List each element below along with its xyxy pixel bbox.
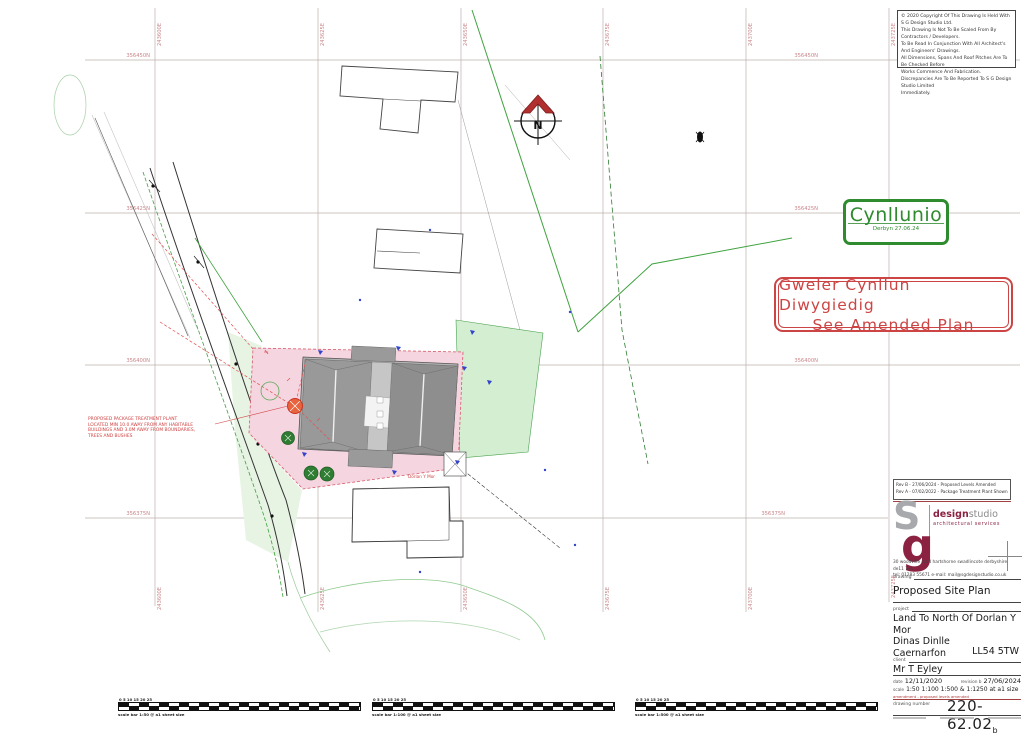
svg-text:356375N: 356375N (761, 511, 785, 517)
scale-value: 1:50 1:100 1:500 & 1:1250 at a1 size (906, 686, 1018, 693)
micro-text-row (893, 717, 1021, 719)
rule (893, 602, 1021, 603)
scale-row: scale 1:50 1:100 1:500 & 1:1250 at a1 si… (893, 686, 1021, 693)
svg-text:243650E: 243650E (463, 23, 469, 46)
scale-bar-label: scale bar 1:500 @ a1 sheet size (635, 712, 878, 717)
logo-design: design (933, 509, 969, 520)
rule (909, 658, 1021, 663)
north-arrow: N (505, 85, 570, 160)
copyright-line: Discrepancies Are To Be Reported To S G … (901, 76, 1012, 90)
rooflight-markers (377, 397, 383, 429)
svg-text:243700E: 243700E (748, 587, 754, 610)
stamp-strike-line (848, 223, 944, 224)
svg-text:243675E: 243675E (605, 587, 611, 610)
drawing-label-row: drawing (893, 575, 1021, 580)
svg-text:356450N: 356450N (126, 53, 150, 59)
stamp-line-welsh: Gweler Cynllun Diwygiedig (779, 275, 1008, 315)
logo-wordmark: designstudio (933, 509, 998, 520)
contour-lines (92, 112, 198, 338)
svg-text:356425N: 356425N (794, 206, 818, 212)
client-label-row: client (893, 658, 1021, 663)
revision-label: revision b (961, 680, 982, 685)
date-value: 12/11/2020 (905, 677, 942, 685)
scale-bar-3: 0 5 10 15 20 25 scale bar 1:500 @ a1 she… (635, 697, 878, 717)
site-plan-canvas: 356450N 356425N 356400N 356375N 356450N … (0, 0, 1024, 723)
drawing-number-label: drawing number (893, 702, 930, 707)
scale-bar-1: 0 5 10 15 20 25 scale bar 1:50 @ a1 shee… (118, 697, 361, 717)
client-label: client (893, 658, 906, 663)
project-label: project (893, 607, 909, 612)
copyright-line: All Dimensions, Spans And Roof Pitches A… (901, 55, 1012, 69)
postcode: LL54 5TW (893, 646, 1019, 657)
annotation-line: TREES AND BUSHES (88, 434, 195, 440)
copyright-line: © 2020 Copyright Of This Drawing Is Held… (901, 13, 1012, 27)
scale-bar-strip (118, 707, 361, 711)
rule (912, 607, 1021, 612)
svg-text:356375N: 356375N (126, 511, 150, 517)
drawing-title: Proposed Site Plan (893, 585, 991, 597)
drawing-number: 220-62.02b (947, 697, 1021, 735)
proposed-building (298, 346, 458, 468)
svg-text:356400N: 356400N (794, 358, 818, 364)
amended-plan-stamp-inner: Gweler Cynllun Diwygiedig See Amended Pl… (778, 281, 1009, 328)
copyright-line: This Drawing Is Not To Be Scaled From By… (901, 27, 1012, 41)
address-line: 30 woodville road hartshorne swadlincote… (893, 560, 1019, 573)
svg-text:243700E: 243700E (748, 23, 754, 46)
svg-text:356400N: 356400N (126, 358, 150, 364)
svg-text:243675E: 243675E (605, 23, 611, 46)
easting-labels-top: 243600E 243625E 243650E 243675E 243700E … (157, 23, 897, 46)
date-label: date (893, 680, 903, 685)
drawing-label: drawing (893, 575, 911, 580)
drawing-number-suffix: b (992, 726, 998, 735)
svg-text:243600E: 243600E (157, 587, 163, 610)
easting-labels-bottom: 243600E 243625E 243650E 243675E 243700E … (157, 575, 897, 610)
annotation-line: BUILDINGS AND 3.0M AWAY FROM BOUNDARIES, (88, 428, 195, 434)
amended-plan-stamp: Gweler Cynllun Diwygiedig See Amended Pl… (774, 277, 1013, 332)
title-block: Rev B - 27/06/2024 - Proposed Levels Ame… (891, 476, 1021, 723)
divider-line (893, 715, 1021, 716)
client-name: Mr T Eyley (893, 664, 943, 675)
stamp-line-english: See Amended Plan (812, 315, 974, 335)
rule (914, 575, 1021, 580)
date-row: date 12/11/2020 revision b 27/06/2024 (893, 677, 1021, 685)
scale-label: scale (893, 688, 904, 693)
project-label-row: project (893, 607, 1021, 612)
svg-text:243650E: 243650E (463, 587, 469, 610)
svg-text:243600E: 243600E (157, 23, 163, 46)
copyright-line: Works Commence And Fabrication. (901, 69, 1012, 76)
svg-text:356450N: 356450N (794, 53, 818, 59)
northing-labels-left: 356450N 356425N 356400N 356375N (126, 53, 150, 517)
rule (893, 675, 1021, 676)
logo-studio: studio (969, 509, 998, 520)
benchmark-symbol (696, 132, 704, 143)
copyright-line: To Be Read In Conjunction With All Archi… (901, 41, 1012, 55)
copyright-line: Immediately. (901, 90, 1012, 97)
neighbour-buildings (340, 66, 463, 273)
project-line: Land To North Of Dorlan Y Mor (893, 613, 1021, 636)
north-letter: N (533, 119, 542, 132)
treatment-plant-annotation: PROPOSED PACKAGE TREATMENT PLANT LOCATED… (88, 417, 195, 439)
revision-entry: Rev B - 27/06/2024 - Proposed Levels Ame… (896, 482, 1008, 489)
stamp-date: Derbyn 27.06.24 (846, 226, 946, 232)
scale-bar-label: scale bar 1:50 @ a1 sheet size (118, 712, 361, 717)
scale-bar-strip (372, 707, 615, 711)
planning-received-stamp: Cynllunio Derbyn 27.06.24 (843, 199, 949, 245)
dorlan-y-mor-label: Dorlan Y Mor (408, 474, 435, 479)
scale-bar-strip (635, 707, 878, 711)
copyright-notes-box: © 2020 Copyright Of This Drawing Is Held… (897, 10, 1016, 68)
svg-text:243625E: 243625E (320, 23, 326, 46)
logo-tagline: architectural services (933, 521, 1000, 527)
revision-date: 27/06/2024 (984, 677, 1021, 685)
scale-bar-label: scale bar 1:100 @ a1 sheet size (372, 712, 615, 717)
registration-mark (988, 556, 1022, 557)
scale-bar-2: 0 5 10 15 20 25 scale bar 1:100 @ a1 she… (372, 697, 615, 717)
